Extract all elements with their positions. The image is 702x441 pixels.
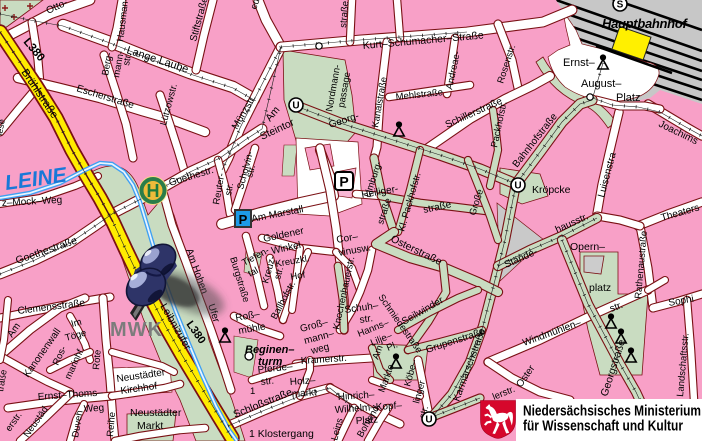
svg-text:straße: straße <box>338 0 351 28</box>
svg-text:U: U <box>514 181 521 192</box>
svg-text:Ernst–: Ernst– <box>563 57 596 69</box>
svg-text:Kröpcke: Kröpcke <box>532 184 571 196</box>
svg-text:Rote: Rote <box>91 349 104 370</box>
svg-text:MWK: MWK <box>110 319 163 341</box>
svg-text:Hauptbahnhof: Hauptbahnhof <box>602 16 688 31</box>
svg-text:Platz: Platz <box>616 92 640 104</box>
svg-text:August–: August– <box>581 78 622 90</box>
svg-text:str.: str. <box>223 182 236 196</box>
svg-text:platz: platz <box>589 282 611 294</box>
svg-text:markt: markt <box>291 387 317 400</box>
svg-text:P: P <box>339 174 348 190</box>
svg-text:S: S <box>617 0 624 11</box>
svg-text:P: P <box>239 212 248 227</box>
svg-text:Holz–: Holz– <box>289 375 316 388</box>
svg-text:1: 1 <box>250 386 255 397</box>
svg-text:Markt: Markt <box>137 420 163 432</box>
svg-text:Weg: Weg <box>83 403 104 415</box>
svg-text:H: H <box>147 181 160 201</box>
svg-text:1 Klostergang: 1 Klostergang <box>249 428 314 440</box>
svg-text:str.: str. <box>121 52 134 66</box>
svg-text:Opern–: Opern– <box>570 241 605 253</box>
svg-text:Reihe: Reihe <box>105 412 118 438</box>
svg-text:str.: str. <box>260 376 274 388</box>
svg-text:U: U <box>292 101 299 112</box>
svg-text:U: U <box>425 415 432 426</box>
svg-text:für Wissenschaft und Kultur: für Wissenschaft und Kultur <box>523 418 683 435</box>
svg-text:Neustädter: Neustädter <box>130 407 182 419</box>
